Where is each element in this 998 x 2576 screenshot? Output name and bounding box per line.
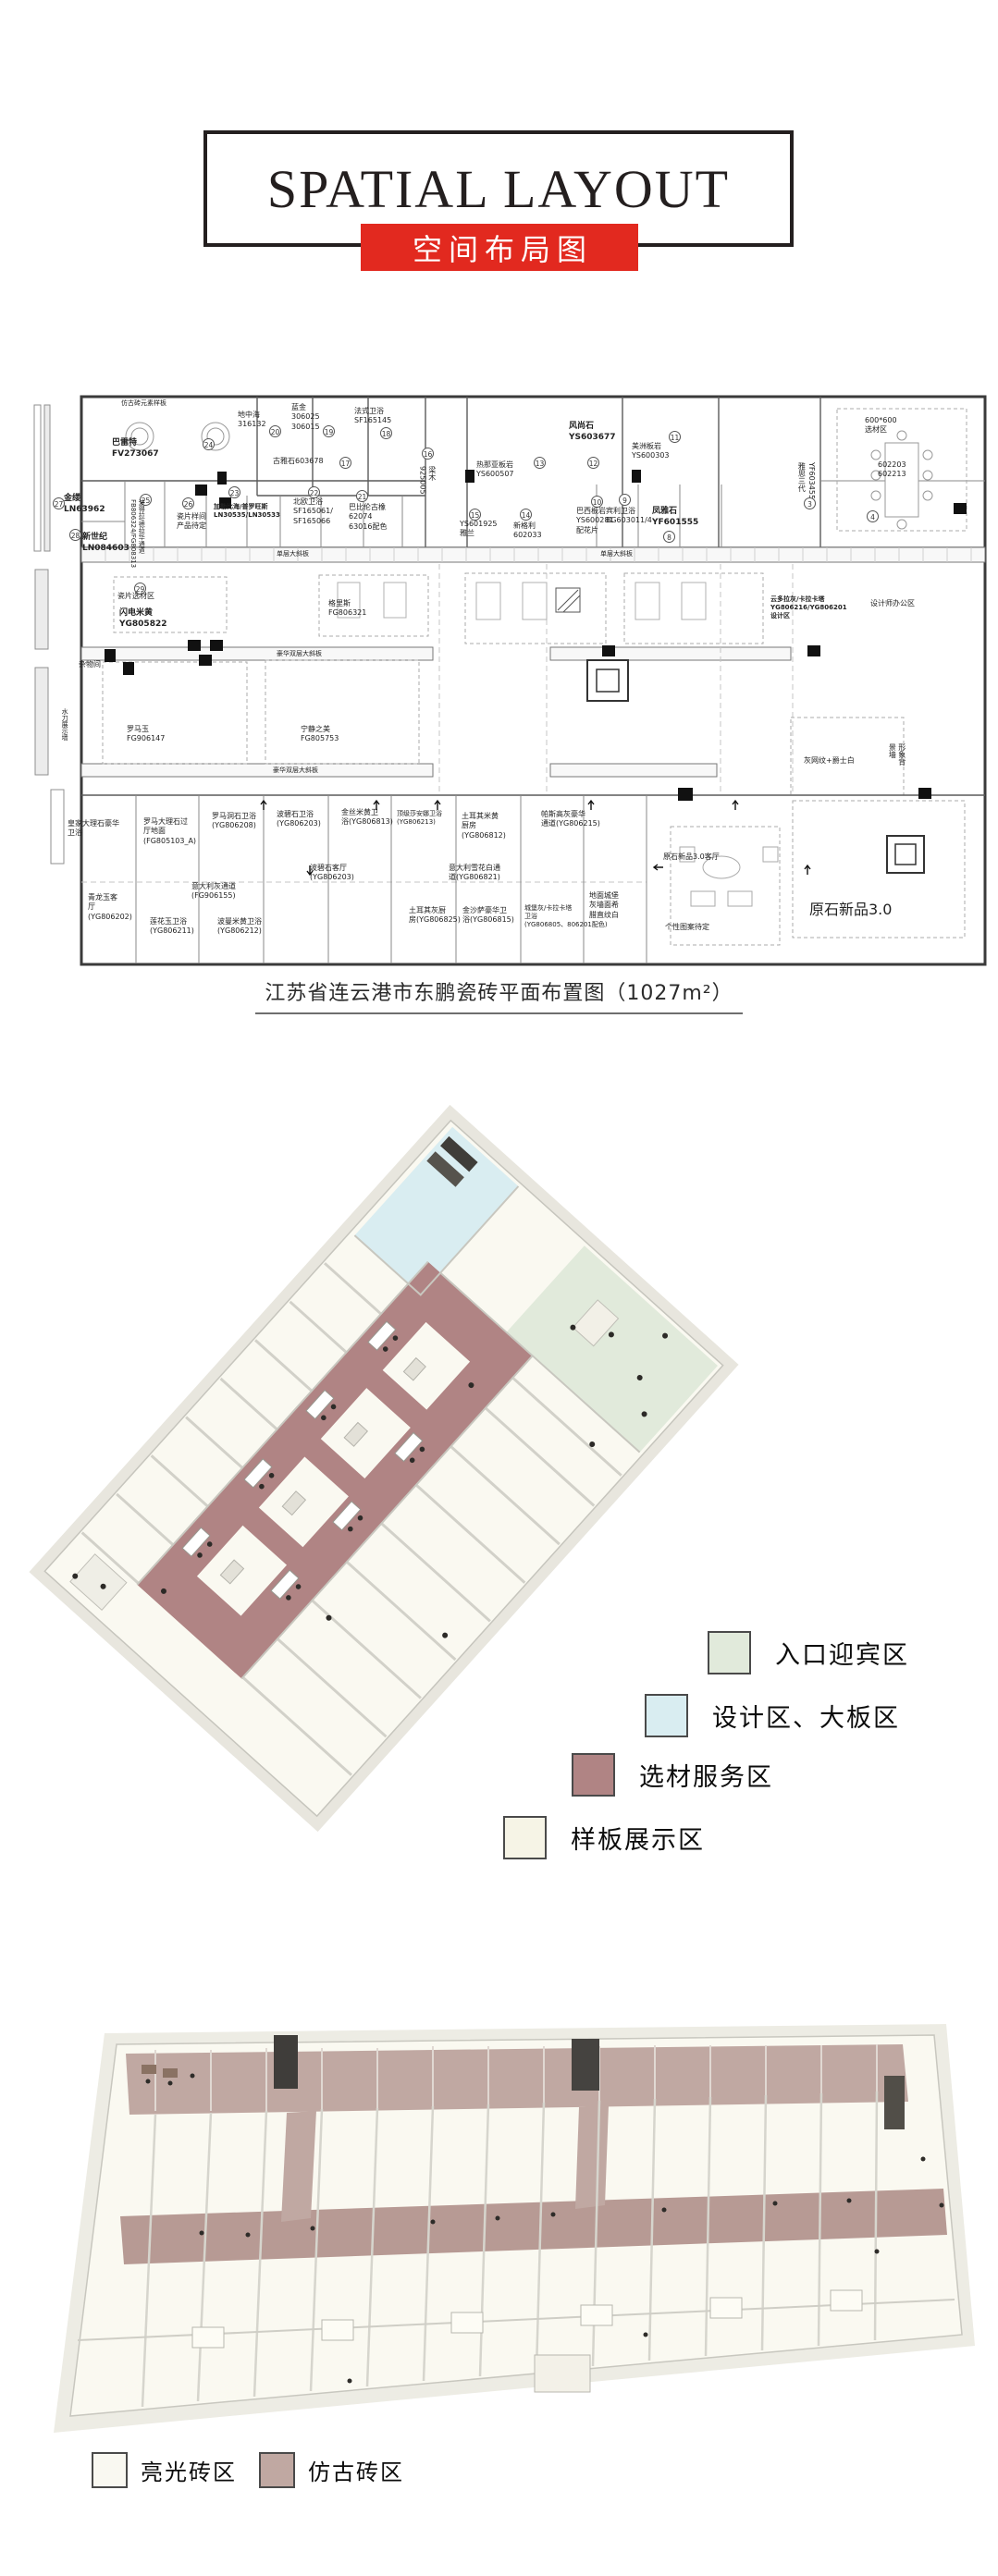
legend-label: 亮光砖区 [141,2454,237,2486]
tile-legend: 亮光砖区仿古砖区 [0,0,998,2576]
legend-item: 仿古砖区 [259,2452,404,2488]
legend-swatch [92,2452,128,2488]
poster-page: SPATIAL LAYOUT 空间布局图 [0,0,998,2576]
legend-swatch [259,2452,295,2488]
legend-label: 仿古砖区 [308,2454,404,2486]
legend-item: 亮光砖区 [92,2452,237,2488]
